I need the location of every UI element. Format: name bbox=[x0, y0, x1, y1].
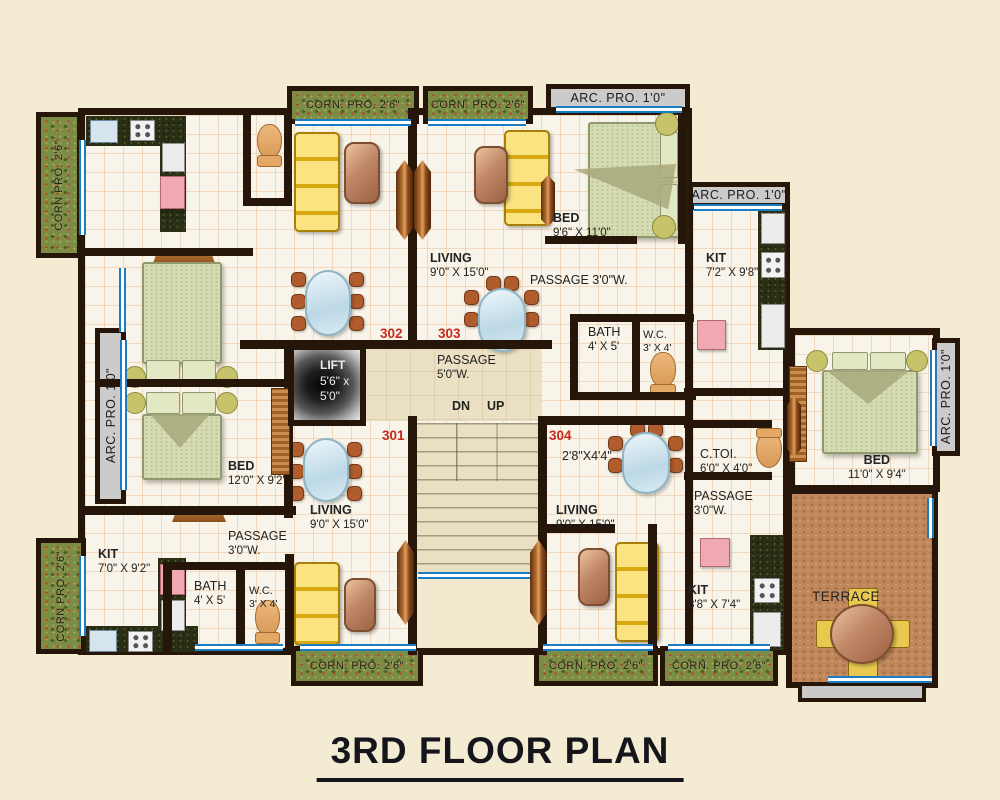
door-301-icon bbox=[397, 540, 414, 625]
wall bbox=[678, 108, 686, 244]
toilet-303-icon bbox=[650, 352, 676, 388]
room-label-passage-304: PASSAGE3'0"W. bbox=[694, 488, 753, 519]
cabinet-304 bbox=[700, 538, 730, 567]
arc-label: ARC. PRO. 1'0" bbox=[939, 349, 953, 444]
window bbox=[930, 350, 937, 446]
window bbox=[79, 556, 86, 636]
balcony-label: CORN PRO. 2'6" bbox=[55, 551, 67, 642]
wall bbox=[284, 108, 292, 206]
window bbox=[668, 644, 770, 651]
window bbox=[543, 644, 653, 651]
wall bbox=[684, 388, 790, 396]
wall bbox=[570, 392, 696, 400]
room-label-bath-301: BATH4' X 5' bbox=[194, 578, 226, 609]
balcony-label: CORN. PRO. 2'6" bbox=[672, 660, 766, 672]
room-label-passage-303: PASSAGE 3'0"W. bbox=[530, 272, 628, 288]
chair bbox=[349, 272, 364, 287]
room-label-wc-301: W.C.3' X 4' bbox=[249, 584, 278, 612]
balcony-label: CORN PRO. 2'6" bbox=[53, 140, 65, 231]
unit-number-304: 304 bbox=[549, 428, 572, 443]
room-label-wc-303: W.C.3' X 4' bbox=[643, 328, 672, 356]
wall bbox=[285, 554, 294, 655]
sofa-301-icon bbox=[294, 562, 340, 646]
pillow bbox=[832, 352, 868, 370]
lift-dims: 5'0" bbox=[320, 389, 340, 403]
window bbox=[428, 119, 526, 126]
balcony-label: CORN. PRO. 2'6" bbox=[431, 99, 525, 111]
sofa-302-icon bbox=[294, 132, 340, 232]
room-label-bed-304: BED11'0" X 9'4" bbox=[848, 452, 906, 483]
floor-plan-page: { "title": "3RD FLOOR PLAN", "palette": … bbox=[0, 0, 1000, 800]
arc-label: ARC. PRO. 1'0" bbox=[691, 188, 786, 202]
room-label-kit-301: KIT7'0" X 9'2" bbox=[98, 546, 150, 577]
chair bbox=[464, 290, 479, 305]
fridge-304 bbox=[753, 612, 781, 647]
room-label-bath-303: BATH4' X 5' bbox=[588, 324, 620, 355]
balcony-corn-bottom-3: CORN. PRO. 2'6" bbox=[660, 646, 778, 686]
dining-table-304 bbox=[622, 432, 670, 494]
wall bbox=[545, 416, 693, 425]
side-table bbox=[652, 215, 676, 239]
door-304-icon bbox=[530, 540, 547, 625]
window bbox=[295, 119, 411, 126]
bed-302a-icon bbox=[142, 262, 222, 364]
pillow bbox=[182, 392, 216, 414]
balcony-corn-left-top: CORN PRO. 2'6" bbox=[36, 112, 82, 258]
door-302-icon bbox=[396, 160, 413, 240]
toilet-302-icon bbox=[257, 124, 282, 159]
unit-number-303: 303 bbox=[438, 326, 461, 341]
room-label-living-303: LIVING9'0" X 15'0" bbox=[430, 250, 489, 281]
balcony-label: CORN. PRO. 2'6" bbox=[306, 99, 400, 111]
page-title: 3RD FLOOR PLAN bbox=[317, 730, 684, 782]
chair bbox=[464, 312, 479, 327]
chair bbox=[291, 272, 306, 287]
fridge-302 bbox=[162, 143, 185, 172]
room-label-terrace: TERRACE bbox=[812, 588, 880, 606]
window bbox=[120, 340, 127, 490]
wall bbox=[648, 524, 657, 655]
wall bbox=[163, 562, 294, 570]
staircase-upper-flight bbox=[417, 423, 539, 481]
pillow bbox=[870, 352, 906, 370]
wall bbox=[632, 314, 640, 400]
stair-void bbox=[417, 578, 539, 648]
stairs-up-label: UP bbox=[487, 398, 504, 414]
stove-304 bbox=[754, 578, 780, 603]
toilet-304-tank bbox=[756, 428, 782, 438]
side-table bbox=[655, 112, 679, 136]
window bbox=[694, 204, 782, 211]
stove-301 bbox=[128, 631, 153, 652]
balcony-corn-bottom-1: CORN. PRO. 2'6" bbox=[291, 646, 423, 686]
coffee-table-301 bbox=[344, 578, 376, 632]
dining-table-302 bbox=[305, 270, 351, 336]
chair bbox=[347, 464, 362, 479]
coffee-table-304 bbox=[578, 548, 610, 606]
chair bbox=[349, 316, 364, 331]
appliance-303 bbox=[761, 304, 785, 348]
wall bbox=[570, 314, 578, 400]
chair bbox=[291, 294, 306, 309]
window bbox=[300, 644, 416, 651]
wall bbox=[243, 108, 251, 206]
chair bbox=[291, 316, 306, 331]
side-table bbox=[906, 350, 928, 372]
lift-label: LIFT bbox=[320, 358, 345, 372]
stairs-down-label: DN bbox=[452, 398, 470, 414]
fridge-303 bbox=[761, 213, 785, 244]
pillow bbox=[146, 392, 180, 414]
room-label-passage-301: PASSAGE3'0"W. bbox=[228, 528, 287, 559]
room-label-kit-304: KIT8'8" X 7'4" bbox=[688, 582, 740, 613]
lift-dims: 5'6" x bbox=[320, 374, 349, 388]
cabinet-303 bbox=[697, 320, 726, 350]
unit-number-301: 301 bbox=[382, 428, 405, 443]
wall bbox=[236, 570, 245, 655]
wall bbox=[78, 248, 253, 256]
room-label-kit-303: KIT7'2" X 9'8" bbox=[706, 250, 758, 281]
chair bbox=[524, 312, 539, 327]
arc-label: ARC. PRO. 1'0" bbox=[570, 91, 665, 105]
dining-table-301 bbox=[303, 438, 349, 502]
window bbox=[195, 644, 283, 651]
window bbox=[828, 676, 932, 683]
core-passage-label: PASSAGE5'0"W. bbox=[437, 352, 496, 383]
coffee-table-302 bbox=[344, 142, 380, 204]
toilet-302-tank bbox=[257, 155, 282, 167]
side-table bbox=[216, 392, 238, 414]
sink-301 bbox=[89, 630, 117, 652]
room-label-store-304: 2'8"X4'4" bbox=[562, 448, 612, 464]
window bbox=[418, 572, 538, 579]
window bbox=[119, 268, 126, 332]
balcony-label: CORN. PRO. 2'6" bbox=[310, 660, 404, 672]
room-label-living-301: LIVING9'0" X 15'0" bbox=[310, 502, 369, 533]
coffee-table-303 bbox=[474, 146, 508, 204]
balcony-corn-bottom-2: CORN. PRO. 2'6" bbox=[534, 646, 658, 686]
toilet-301-tank bbox=[255, 632, 280, 644]
door-303-icon bbox=[414, 160, 431, 240]
stove-302 bbox=[130, 120, 155, 141]
terrace-sill bbox=[798, 682, 926, 702]
wall bbox=[243, 198, 292, 206]
terrace-table bbox=[830, 604, 894, 664]
chair bbox=[668, 458, 683, 473]
window bbox=[556, 106, 682, 113]
wall bbox=[163, 562, 172, 655]
stove-303 bbox=[761, 252, 785, 278]
cabinet-302 bbox=[160, 176, 185, 209]
chair bbox=[349, 294, 364, 309]
wall bbox=[684, 420, 772, 428]
sink-302 bbox=[90, 120, 118, 143]
door-bed-304-icon bbox=[787, 396, 801, 458]
room-label-ctoi-304: C.TOI.6'0" X 4'0" bbox=[700, 446, 752, 477]
window bbox=[79, 140, 86, 235]
chair bbox=[524, 290, 539, 305]
room-label-living-304: LIVING9'0" X 15'0" bbox=[556, 502, 615, 533]
window bbox=[927, 498, 934, 538]
chair bbox=[347, 442, 362, 457]
room-label-bed-303: BED9'6" X 11'0" bbox=[553, 210, 611, 241]
wall bbox=[78, 506, 296, 515]
chair bbox=[668, 436, 683, 451]
room-label-bed-302: BED12'0" X 9'2" bbox=[228, 458, 287, 489]
chair bbox=[347, 486, 362, 501]
lift-shaft: LIFT 5'6" x 5'0" bbox=[288, 344, 366, 426]
balcony-label: CORN. PRO. 2'6" bbox=[549, 660, 643, 672]
side-table bbox=[124, 392, 146, 414]
side-table bbox=[806, 350, 828, 372]
unit-number-302: 302 bbox=[380, 326, 403, 341]
